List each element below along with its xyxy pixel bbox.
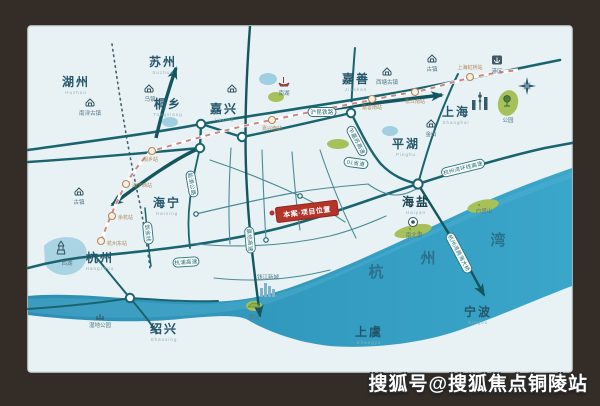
svg-text:Jiaxing: Jiaxing <box>213 117 234 122</box>
svg-text:景区: 景区 <box>248 314 260 321</box>
city-label-shaoxing: 绍兴 <box>150 321 178 336</box>
svg-text:西塘古镇: 西塘古镇 <box>376 78 399 86</box>
svg-text:Shaoxing: Shaoxing <box>151 337 178 342</box>
svg-text:湾: 湾 <box>490 231 505 249</box>
station-label: 松江南站 <box>405 98 425 105</box>
svg-text:Suzhou: Suzhou <box>152 70 173 75</box>
city-label-tongxiang: 桐乡 <box>154 96 182 111</box>
station-label: 桐乡站 <box>143 156 158 163</box>
city-label-jiashan: 嘉善 <box>341 71 370 86</box>
port-icon <box>492 56 502 65</box>
svg-text:Shangyu: Shangyu <box>357 340 382 345</box>
road-label-wengjin: 翁金线 <box>142 222 153 245</box>
city-label-shangyu: 上虞 <box>355 324 383 339</box>
city-label-haiyan: 海盐 <box>402 194 430 209</box>
map-canvas: 杭州东站 余杭站 海宁西站 桐乡站 嘉兴南站 嘉善南站 松江南站 上海虹桥站 沪… <box>0 0 600 401</box>
lake-small-pinghu <box>382 126 398 136</box>
city-label-hangzhou: 杭州 <box>86 250 114 265</box>
city-label-haining: 海宁 <box>153 195 181 210</box>
svg-text:杭: 杭 <box>368 263 383 281</box>
svg-text:白塔山: 白塔山 <box>476 207 493 215</box>
svg-text:西湖: 西湖 <box>61 259 73 267</box>
scenic-emblem-icon <box>409 218 418 227</box>
city-label-jiaxing: 嘉兴 <box>209 101 238 116</box>
svg-text:南北湖: 南北湖 <box>406 231 423 239</box>
road-label-hangpu: 杭浦高速 <box>173 257 200 268</box>
svg-text:金山: 金山 <box>425 130 436 138</box>
city-label-huzhou: 湖州 <box>62 74 90 89</box>
location-map: 杭州东站 余杭站 海宁西站 桐乡站 嘉兴南站 嘉善南站 松江南站 上海虹桥站 沪… <box>0 0 600 406</box>
station-label: 海宁西站 <box>132 182 152 189</box>
svg-text:公园: 公园 <box>502 117 514 124</box>
svg-text:Huzhou: Huzhou <box>65 90 87 95</box>
city-label-suzhou: 苏州 <box>149 54 177 69</box>
station-label: 余杭站 <box>118 214 133 221</box>
svg-text:古镇: 古镇 <box>426 65 438 73</box>
svg-text:Ningbo: Ningbo <box>468 320 488 325</box>
station-label: 嘉兴南站 <box>262 125 282 132</box>
station-label: 上海虹桥站 <box>457 64 482 71</box>
svg-text:港区: 港区 <box>491 67 503 75</box>
station-label: 嘉善南站 <box>362 104 382 111</box>
svg-text:Haiyan: Haiyan <box>406 210 426 215</box>
svg-text:Hangzhou: Hangzhou <box>86 266 115 271</box>
svg-text:沪昆铁路: 沪昆铁路 <box>310 108 333 116</box>
sohu-watermark: 搜狐号@搜狐焦点铜陵站 <box>368 369 588 396</box>
city-label-shanghai: 上海 <box>442 104 470 119</box>
svg-text:南湖: 南湖 <box>278 89 290 97</box>
city-label-ningbo: 宁波 <box>464 304 492 319</box>
lake-small-tongxiang <box>162 117 178 127</box>
project-dot <box>270 211 275 216</box>
svg-text:Tongxiang: Tongxiang <box>153 112 183 117</box>
svg-text:Haining: Haining <box>156 211 178 216</box>
svg-text:Jiashan: Jiashan <box>345 87 368 92</box>
svg-text:州: 州 <box>419 250 435 267</box>
city-label-pinghu: 平湖 <box>392 136 420 151</box>
road-label-hukun-rail: 沪昆铁路 <box>308 108 336 117</box>
svg-text:古镇: 古镇 <box>73 198 85 206</box>
road-label-jiashao: 嘉绍高速 <box>244 227 255 254</box>
svg-text:南浔古镇: 南浔古镇 <box>79 109 102 117</box>
svg-text:湿地公园: 湿地公园 <box>89 321 112 329</box>
svg-text:Shanghai: Shanghai <box>442 120 469 125</box>
svg-text:Pinghu: Pinghu <box>396 152 416 157</box>
svg-text:钱江新城: 钱江新城 <box>257 273 280 281</box>
lake-small-jiaxing <box>259 73 277 85</box>
station-label: 杭州东站 <box>107 240 127 247</box>
